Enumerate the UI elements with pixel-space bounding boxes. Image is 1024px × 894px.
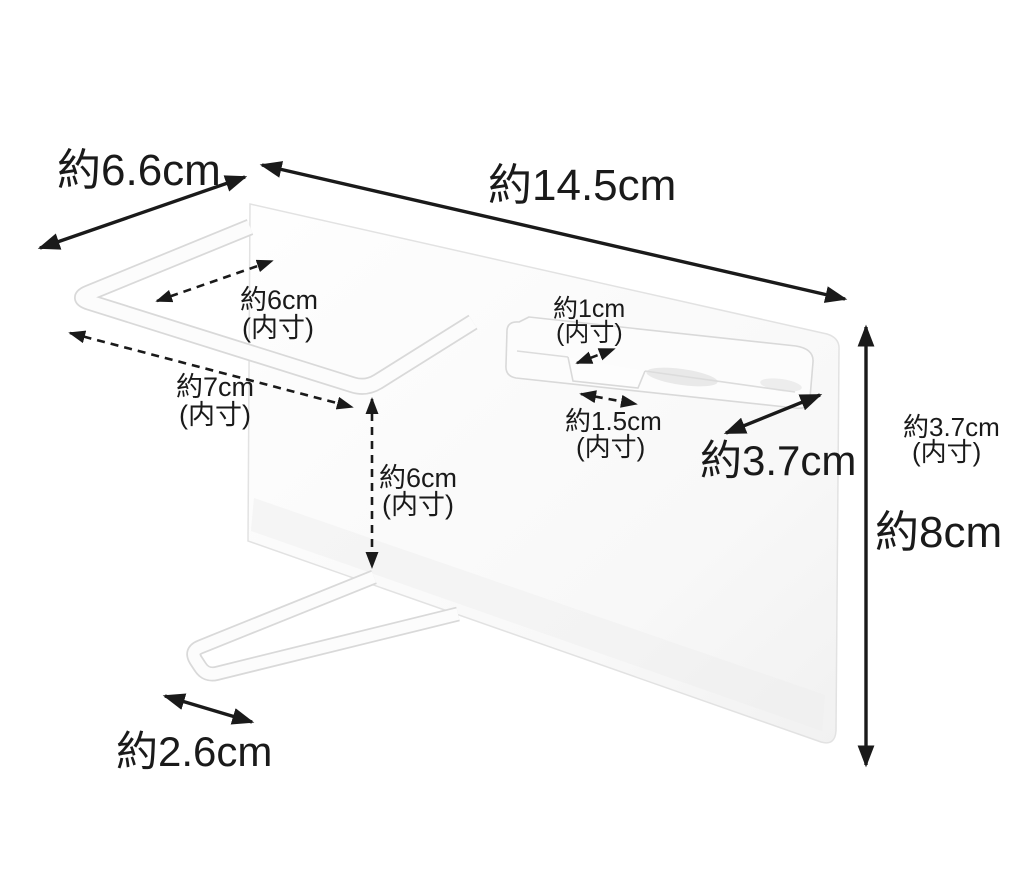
dim-label-slot-width-qualifier: (内寸)	[576, 432, 645, 462]
dim-label-overall-depth: 約6.6cm	[57, 146, 221, 195]
dim-label-towel-inner-depth-qualifier: (内寸)	[179, 400, 251, 430]
dim-label-clearance-height-qualifier: (内寸)	[382, 490, 454, 520]
product-dimension-diagram: 約6.6cm 約14.5cm 約6cm (内寸) 約7cm (内寸) 約1cm …	[0, 0, 1024, 894]
dim-label-holder-width: 約3.7cm	[700, 437, 856, 484]
diagram-canvas: 約6.6cm 約14.5cm 約6cm (内寸) 約7cm (内寸) 約1cm …	[0, 0, 1024, 894]
dim-label-clearance-height: 約6cm	[379, 463, 457, 493]
dim-label-overall-height: 約8cm	[875, 508, 1002, 557]
dim-label-towel-inner-width: 約6cm	[240, 285, 318, 315]
dim-label-towel-inner-depth: 約7cm	[176, 372, 254, 402]
dim-label-overall-width: 約14.5cm	[488, 161, 676, 210]
dim-label-slot-depth-qualifier: (内寸)	[556, 319, 623, 347]
dim-arrow-bottom-bar-width	[165, 696, 252, 722]
dim-label-holder-inner-height-qualifier: (内寸)	[912, 437, 981, 467]
dim-label-bottom-bar-width: 約2.6cm	[116, 728, 272, 775]
dim-label-towel-inner-width-qualifier: (内寸)	[242, 313, 314, 343]
